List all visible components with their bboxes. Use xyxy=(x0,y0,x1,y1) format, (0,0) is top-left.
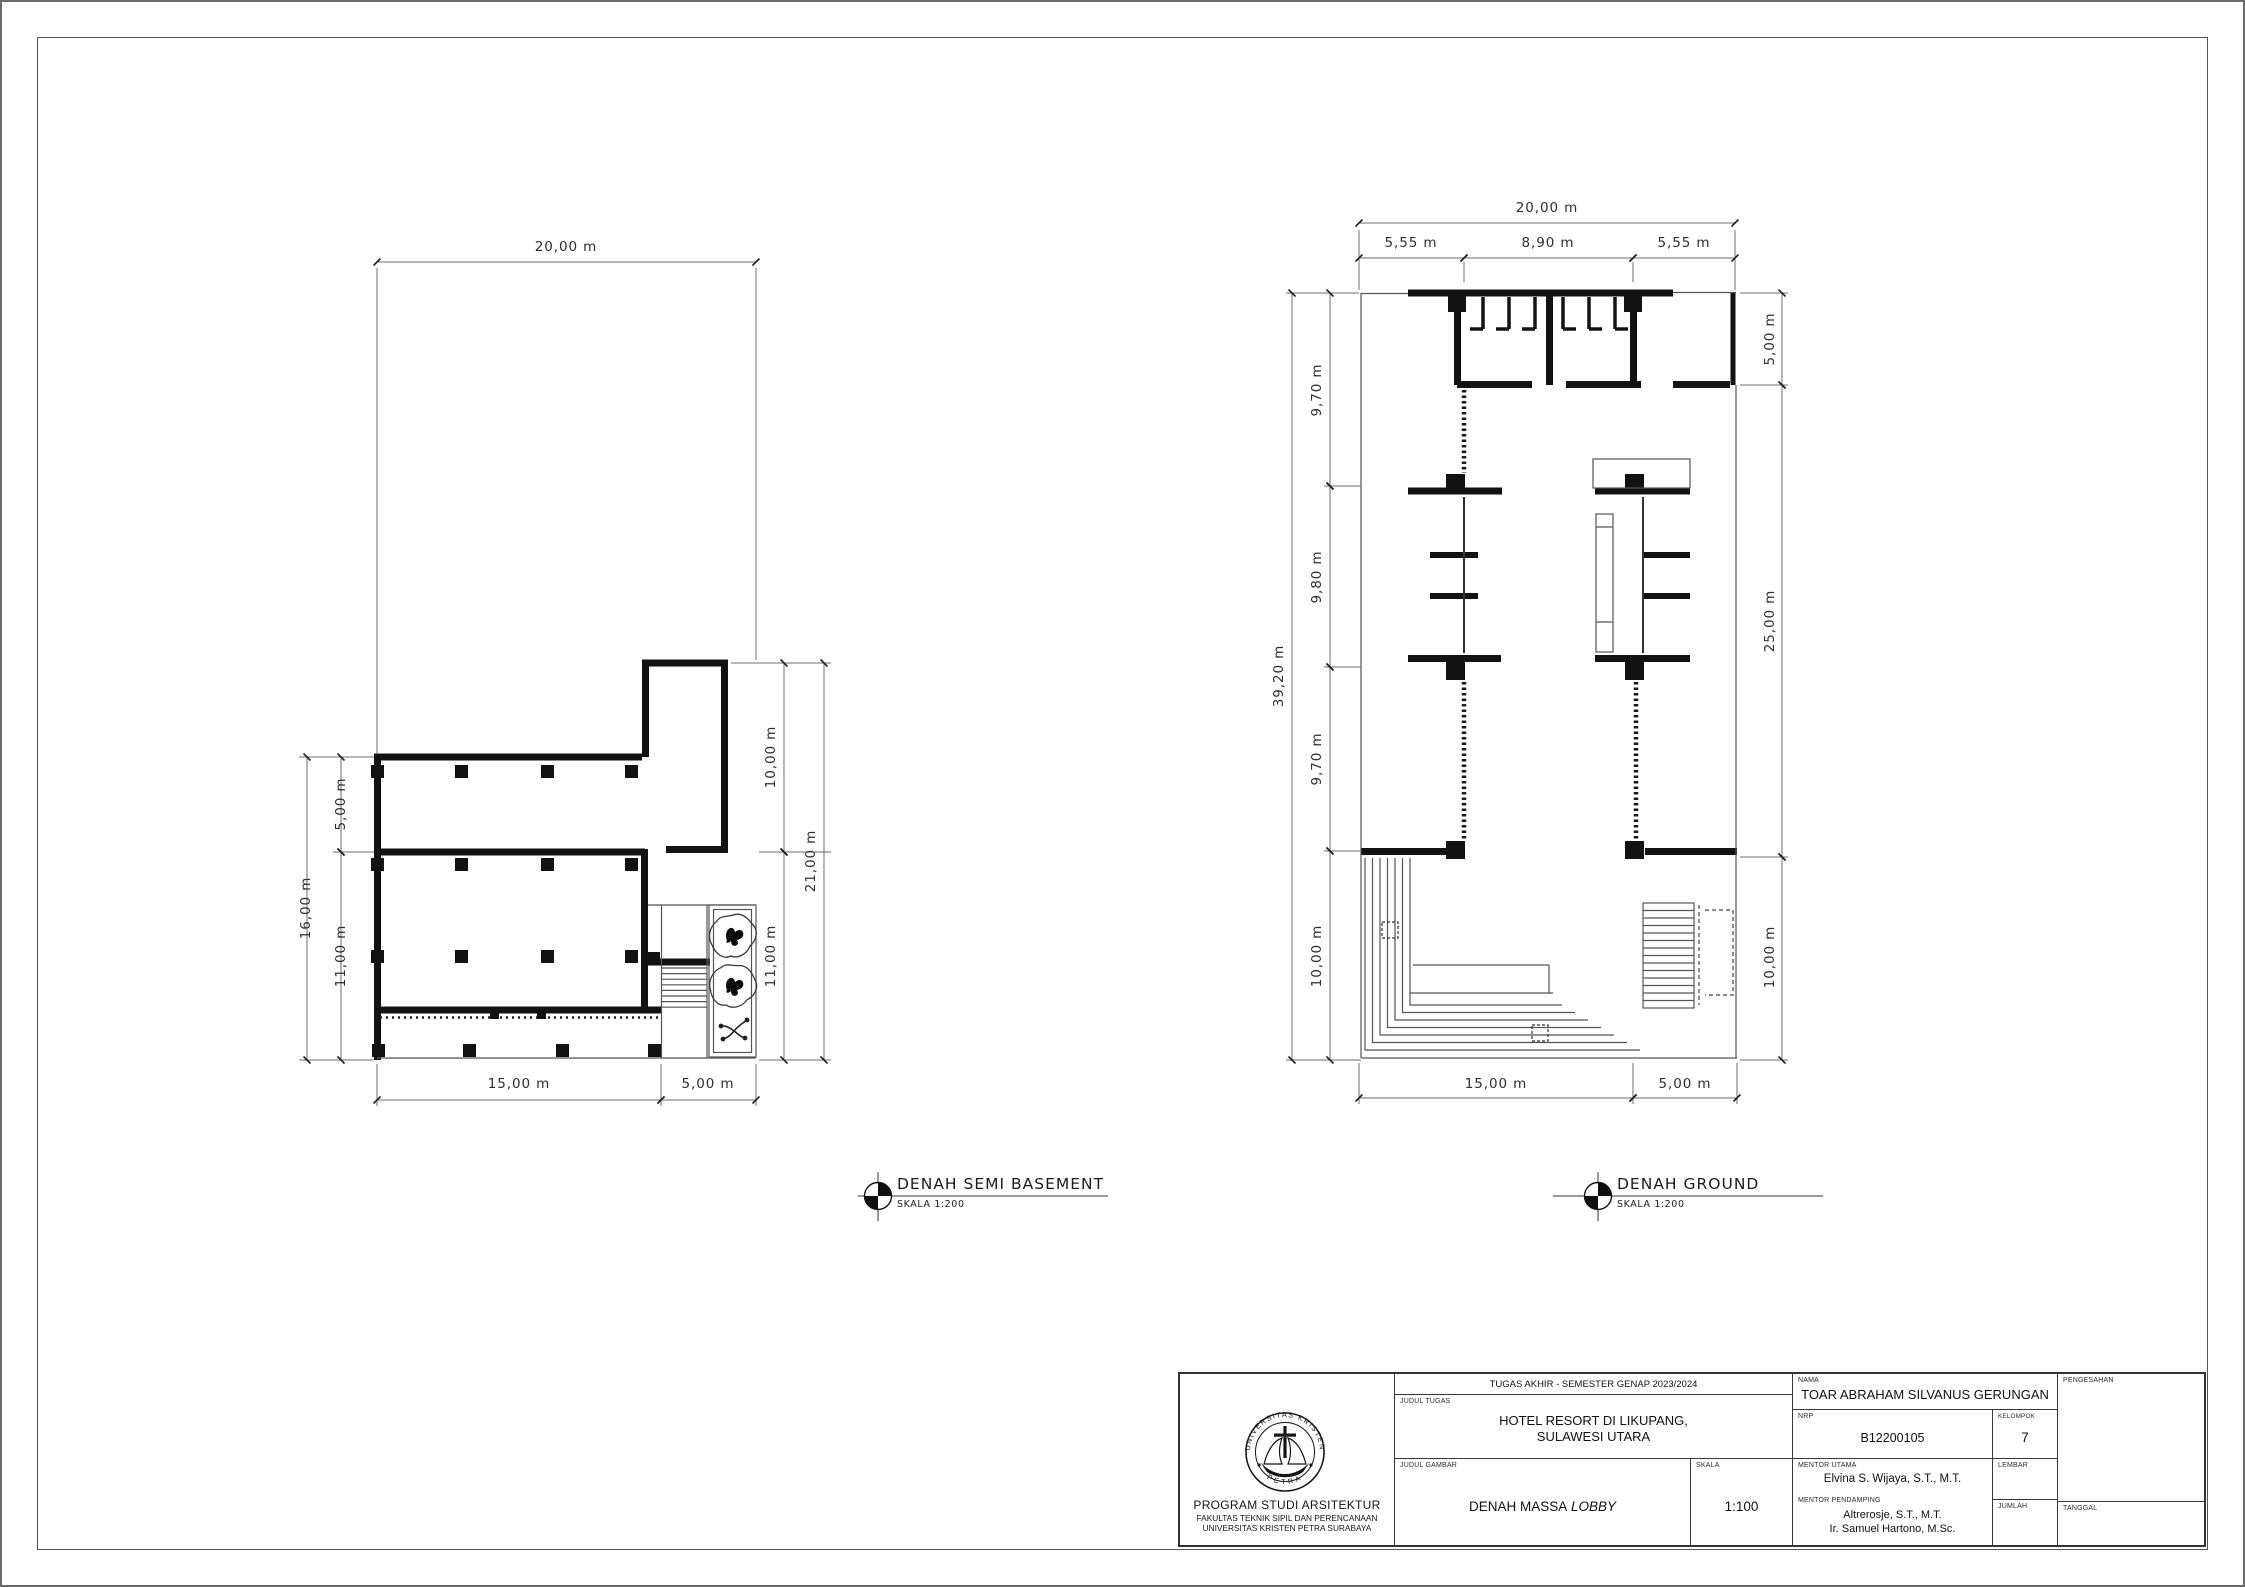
pengesahan-label: PENGESAHAN xyxy=(2063,1377,2114,1384)
dim-label: 20,00 m xyxy=(1516,200,1578,216)
semi-basement-plan-drawing xyxy=(299,262,831,1106)
institution-cell: UNIVERSITAS KRISTEN PETRA PROGRAM STUDI … xyxy=(1180,1374,1395,1545)
nama-value: TOAR ABRAHAM SILVANUS GERUNGAN xyxy=(1793,1387,2057,1402)
jumlah-cell: JUMLAH xyxy=(1992,1500,2057,1545)
plan-title-semi-basement: DENAH SEMI BASEMENT xyxy=(897,1175,1104,1193)
dim-label: 25,00 m xyxy=(1762,590,1778,652)
lembar-label: LEMBAR xyxy=(1998,1462,2028,1469)
dim-label: 20,00 m xyxy=(535,239,597,255)
dim-label: 15,00 m xyxy=(488,1076,550,1092)
mentor-utama-label: MENTOR UTAMA xyxy=(1798,1462,1857,1469)
plan-scale-semi-basement: SKALA 1:200 xyxy=(897,1199,965,1210)
judul-tugas-line2: SULAWESI UTARA xyxy=(1395,1429,1792,1445)
judul-gambar-value-italic: LOBBY xyxy=(1571,1499,1616,1514)
mentor-utama-value: Elvina S. Wijaya, S.T., M.T. xyxy=(1793,1473,1992,1485)
dim-label: 21,00 m xyxy=(803,830,819,892)
mentor-pendamping-value1: Altrerosje, S.T., M.T. xyxy=(1793,1509,1992,1521)
dim-label: 5,00 m xyxy=(1659,1076,1712,1092)
mentor-pendamping-value2: Ir. Samuel Hartono, M.Sc. xyxy=(1793,1523,1992,1535)
nama-label: NAMA xyxy=(1798,1377,1819,1384)
kelompok-value: 7 xyxy=(1993,1430,2057,1445)
institution-university: UNIVERSITAS KRISTEN PETRA SURABAYA xyxy=(1180,1523,1394,1533)
skala-label: SKALA xyxy=(1696,1462,1720,1469)
dim-label: 5,00 m xyxy=(1762,313,1778,366)
mentor-cell: MENTOR UTAMA Elvina S. Wijaya, S.T., M.T… xyxy=(1792,1459,1992,1545)
dim-label: 9,70 m xyxy=(1309,364,1325,417)
pengesahan-cell: PENGESAHAN xyxy=(2057,1374,2204,1502)
title-block: UNIVERSITAS KRISTEN PETRA PROGRAM STUDI … xyxy=(1178,1372,2206,1547)
nama-cell: NAMA TOAR ABRAHAM SILVANUS GERUNGAN xyxy=(1792,1374,2057,1410)
dim-label: 9,70 m xyxy=(1309,733,1325,786)
plan-title-ground: DENAH GROUND xyxy=(1617,1175,1759,1193)
dim-label: 11,00 m xyxy=(333,925,349,987)
dim-label: 5,00 m xyxy=(682,1076,735,1092)
nrp-label: NRP xyxy=(1798,1413,1813,1420)
plan-scale-ground: SKALA 1:200 xyxy=(1617,1199,1685,1210)
mentor-pendamping-label: MENTOR PENDAMPING xyxy=(1798,1497,1881,1504)
dim-label: 10,00 m xyxy=(1309,925,1325,987)
institution-program: PROGRAM STUDI ARSITEKTUR xyxy=(1180,1498,1394,1512)
judul-tugas-line1: HOTEL RESORT DI LIKUPANG, xyxy=(1395,1413,1792,1429)
jumlah-label: JUMLAH xyxy=(1998,1503,2027,1510)
judul-tugas-label: JUDUL TUGAS xyxy=(1400,1398,1450,1405)
judul-gambar-cell: JUDUL GAMBAR DENAH MASSA LOBBY xyxy=(1395,1459,1690,1545)
dim-label: 5,00 m xyxy=(333,778,349,831)
judul-gambar-label: JUDUL GAMBAR xyxy=(1400,1462,1457,1469)
judul-gambar-value: DENAH MASSA xyxy=(1469,1499,1567,1514)
dim-label: 9,80 m xyxy=(1309,551,1325,604)
ground-plan-drawing xyxy=(1286,223,1788,1104)
shrub-symbol-icon xyxy=(719,1018,748,1040)
tanggal-cell: TANGGAL xyxy=(2057,1502,2204,1545)
tanggal-label: TANGGAL xyxy=(2063,1505,2097,1512)
universitas-kristen-petra-seal-icon: UNIVERSITAS KRISTEN PETRA xyxy=(1243,1410,1327,1494)
nrp-cell: NRP B12200105 xyxy=(1792,1410,1992,1459)
dim-label: 5,55 m xyxy=(1658,235,1711,251)
institution-faculty: FAKULTAS TEKNIK SIPIL DAN PERENCANAAN xyxy=(1180,1513,1394,1523)
dim-label: 39,20 m xyxy=(1271,645,1287,707)
dim-label: 11,00 m xyxy=(763,925,779,987)
lembar-cell: LEMBAR xyxy=(1992,1459,2057,1500)
kelompok-label: KELOMPOK xyxy=(1998,1413,2035,1420)
nrp-value: B12200105 xyxy=(1793,1431,1992,1445)
dim-label: 16,00 m xyxy=(298,877,314,939)
dim-label: 15,00 m xyxy=(1465,1076,1527,1092)
dim-label: 8,90 m xyxy=(1522,235,1575,251)
skala-value: 1:100 xyxy=(1691,1499,1792,1514)
assignment-header: TUGAS AKHIR - SEMESTER GENAP 2023/2024 xyxy=(1395,1374,1792,1395)
dim-label: 10,00 m xyxy=(1762,926,1778,988)
judul-tugas-cell: JUDUL TUGAS HOTEL RESORT DI LIKUPANG, SU… xyxy=(1395,1395,1792,1459)
dim-label: 10,00 m xyxy=(763,726,779,788)
skala-cell: SKALA 1:100 xyxy=(1690,1459,1792,1545)
kelompok-cell: KELOMPOK 7 xyxy=(1992,1410,2057,1459)
dim-label: 5,55 m xyxy=(1385,235,1438,251)
